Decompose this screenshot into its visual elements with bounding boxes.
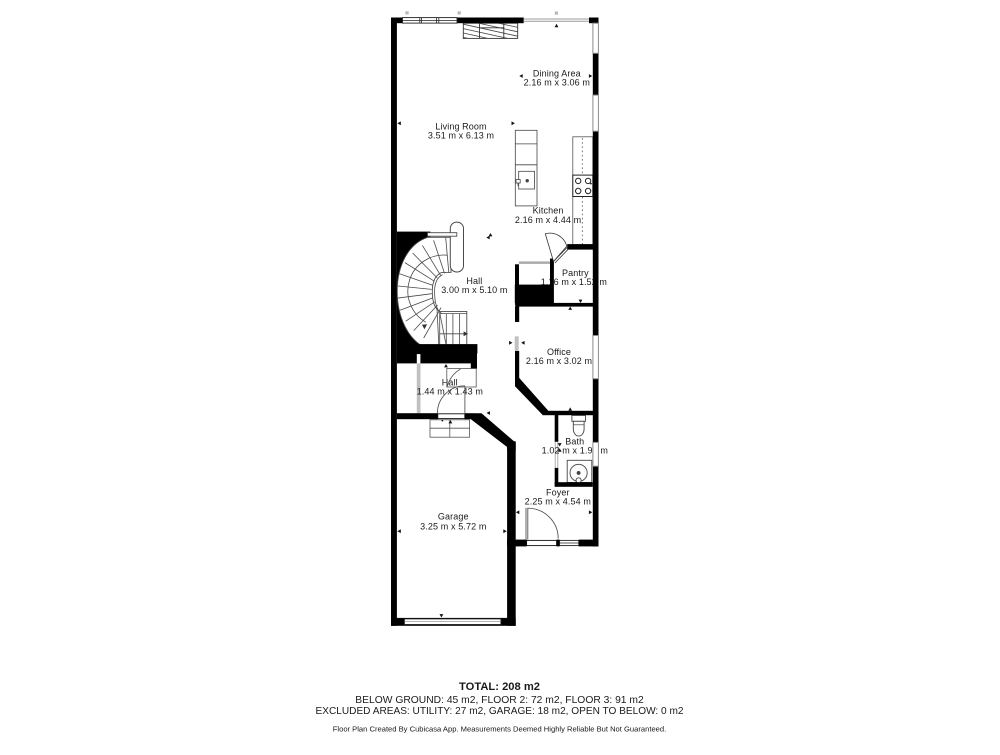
svg-text:BELOW GROUND: 45 m2, FLOOR 2:: BELOW GROUND: 45 m2, FLOOR 2: 72 m2, FLO… — [355, 695, 644, 706]
svg-text:EXCLUDED AREAS: UTILITY: 27 m2: EXCLUDED AREAS: UTILITY: 27 m2, GARAGE: … — [316, 706, 684, 717]
svg-text:3.51 m x 6.13 m: 3.51 m x 6.13 m — [428, 131, 494, 141]
svg-text:2.16 m x 3.02 m: 2.16 m x 3.02 m — [526, 356, 592, 366]
svg-text:Floor Plan Created By Cubicasa: Floor Plan Created By Cubicasa App. Meas… — [333, 724, 666, 733]
svg-text:3.25 m x 5.72 m: 3.25 m x 5.72 m — [420, 522, 486, 532]
svg-text:2.16 m x 3.06 m: 2.16 m x 3.06 m — [524, 77, 590, 87]
svg-text:2.16 m x 4.44 m: 2.16 m x 4.44 m — [515, 215, 581, 225]
svg-text:2.25 m x 4.54 m: 2.25 m x 4.54 m — [525, 497, 591, 507]
svg-text:1.44 m x 1.43 m: 1.44 m x 1.43 m — [417, 387, 483, 397]
svg-text:3.00 m x 5.10 m: 3.00 m x 5.10 m — [441, 285, 507, 295]
svg-text:Garage: Garage — [438, 511, 469, 521]
svg-text:TOTAL: 208 m2: TOTAL: 208 m2 — [459, 681, 540, 693]
